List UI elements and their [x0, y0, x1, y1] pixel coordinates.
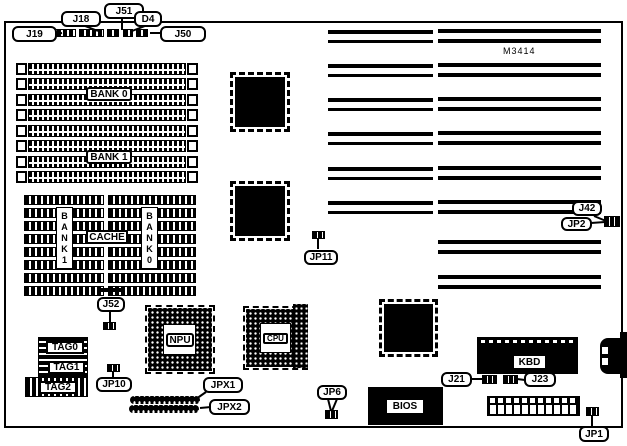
- jp1-callout: JP1: [579, 426, 609, 442]
- bios-label: BIOS: [386, 399, 424, 414]
- jpx2-callout: JPX2: [209, 399, 250, 415]
- d4-callout: D4: [134, 11, 162, 27]
- bank0-label: BANK 0: [86, 87, 132, 101]
- npu-label: NPU: [166, 333, 194, 347]
- j52-callout: J52: [97, 297, 125, 312]
- cpu-label: CPU: [263, 333, 288, 344]
- jp10-callout: JP10: [96, 377, 132, 392]
- j23-callout: J23: [524, 372, 556, 387]
- jp11-callout: JP11: [304, 250, 338, 265]
- jp6-callout: JP6: [317, 385, 347, 400]
- j50-callout: J50: [160, 26, 206, 42]
- tag1-label: TAG1: [48, 361, 85, 374]
- cache-bank0-vertical-label: BANK0: [141, 207, 158, 269]
- jp2-callout: JP2: [561, 217, 592, 231]
- jpx1-callout: JPX1: [203, 377, 243, 393]
- motherboard-diagram: BANK 0 BANK 1 BANK1 BANK0 CACHE JP11 M34…: [0, 0, 627, 446]
- cache-label: CACHE: [86, 230, 128, 244]
- j18-callout: J18: [61, 11, 101, 27]
- cache-bank1-vertical-label: BANK1: [56, 207, 73, 269]
- bank1-label: BANK 1: [86, 150, 132, 164]
- j42-callout: J42: [572, 201, 602, 216]
- kbd-label: KBD: [513, 355, 546, 369]
- tag0-label: TAG0: [46, 341, 84, 354]
- j19-callout: J19: [12, 26, 57, 42]
- j21-callout: J21: [441, 372, 472, 387]
- tag2-label: TAG2: [39, 381, 77, 394]
